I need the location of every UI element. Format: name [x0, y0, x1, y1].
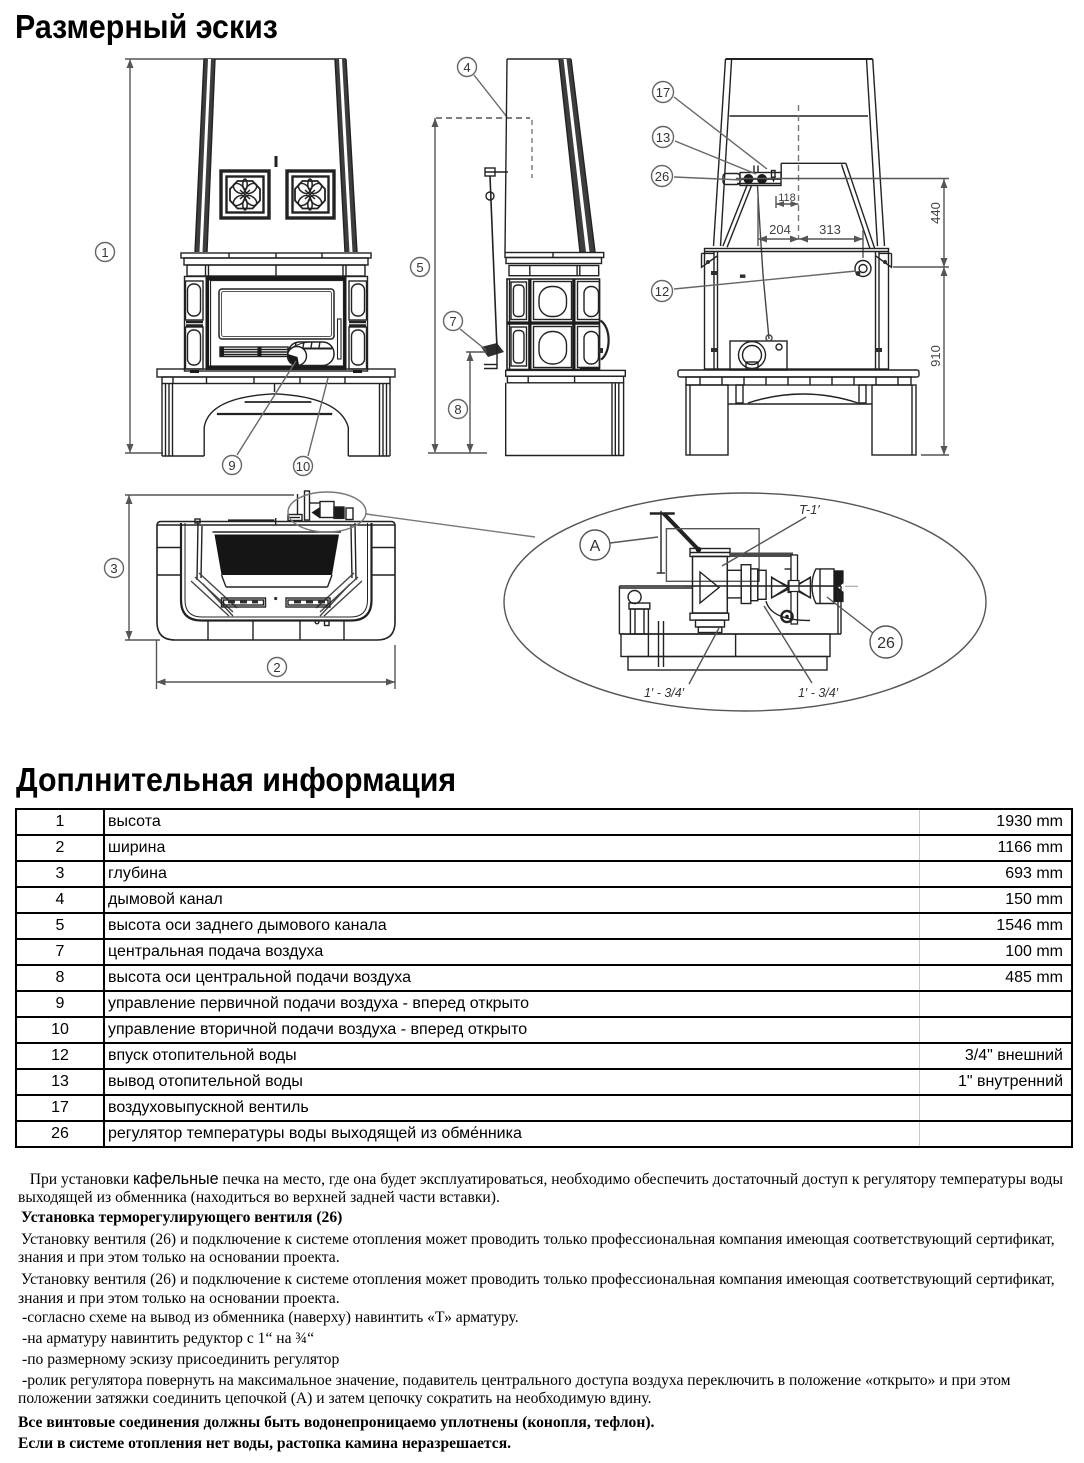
svg-text:8: 8: [454, 402, 461, 417]
svg-text:440: 440: [928, 202, 943, 224]
svg-text:17: 17: [656, 85, 670, 100]
svg-text:3: 3: [110, 561, 117, 576]
svg-text:4: 4: [463, 60, 470, 75]
svg-text:12: 12: [655, 284, 669, 299]
svg-text:5: 5: [416, 260, 423, 275]
svg-text:910: 910: [928, 345, 943, 367]
svg-text:26: 26: [877, 635, 895, 652]
svg-text:7: 7: [449, 314, 456, 329]
svg-text:10: 10: [296, 459, 310, 474]
svg-text:313: 313: [819, 222, 841, 237]
svg-text:A: A: [590, 538, 601, 555]
svg-text:118: 118: [778, 192, 796, 204]
svg-text:1′ - 3/4′: 1′ - 3/4′: [798, 686, 839, 700]
svg-text:204: 204: [769, 222, 791, 237]
svg-text:26: 26: [655, 169, 669, 184]
svg-text:9: 9: [228, 458, 235, 473]
svg-text:13: 13: [656, 130, 670, 145]
svg-text:2: 2: [273, 660, 280, 675]
svg-text:1′ - 3/4′: 1′ - 3/4′: [644, 686, 685, 700]
svg-text:T-1′: T-1′: [799, 502, 820, 517]
svg-text:1: 1: [101, 245, 108, 260]
